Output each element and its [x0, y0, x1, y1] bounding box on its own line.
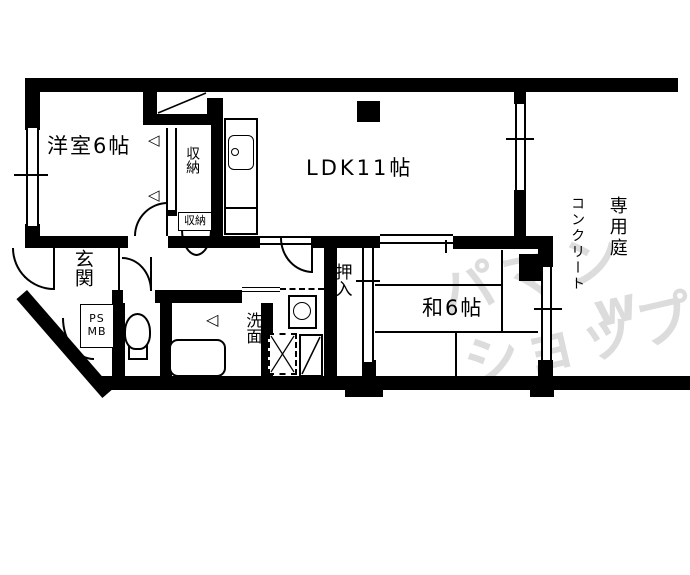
water-heater-box: [299, 334, 323, 377]
bath-door-marker-icon: ◁: [206, 312, 218, 328]
room-label-closet: 収納: [184, 146, 200, 174]
sliding-tick-oshiire: [356, 280, 380, 282]
door-leaf-toilet: [150, 257, 152, 291]
wall-ldk-right: [514, 190, 526, 236]
room-label-washroom: 洗面: [243, 312, 261, 344]
room-label-japanese: 和6帖: [422, 296, 483, 320]
wall-left-upper: [25, 78, 40, 130]
kitchen-counter-divider: [226, 207, 256, 209]
window-tick-japanese: [534, 308, 562, 310]
sliding-door-japanese-top-icon: [380, 234, 453, 244]
garden-surface-label: コンクリート: [569, 196, 585, 292]
tatami-line: [375, 284, 503, 286]
sliding-tick-japanese-top: [445, 240, 447, 253]
room-label-entrance: 玄関: [71, 249, 93, 287]
closet-small-box: 収納: [178, 212, 212, 231]
pillar-ldk-square: [357, 101, 380, 122]
wall-top: [25, 78, 678, 92]
water-heater-diagonal-icon: [301, 336, 321, 375]
pipe-meter-box: PS MB: [80, 304, 114, 348]
toilet-bowl-icon: [124, 313, 151, 350]
wall-hall-divider-left: [25, 236, 128, 248]
pillar-ldk-window-top: [514, 92, 526, 104]
wall-japanese-right-bottom: [538, 360, 553, 388]
fridge-slot-diagonal-icon: [157, 92, 207, 114]
wall-fusuma-bottom: [362, 360, 376, 378]
door-arc-entrance-icon: [12, 248, 54, 290]
floor-plan: パマン ショップ w: [0, 0, 690, 575]
pillar-japanese-room-ne: [519, 254, 543, 281]
garden-label: 専用庭: [606, 196, 627, 259]
door-leaf-entrance: [53, 248, 55, 290]
folding-door-marker-icon: ◁: [148, 188, 160, 203]
tatami-line: [501, 250, 503, 333]
window-ldk-icon: [515, 104, 526, 190]
window-tick-ldk: [506, 138, 534, 140]
wall-kitchen-left: [211, 98, 223, 236]
room-label-closet-small: 収納: [184, 215, 206, 228]
door-arc-ldk-icon: [280, 238, 313, 273]
wall-sanitary-top-right: [155, 290, 242, 303]
entrance-threshold-line: [118, 248, 120, 292]
accordion-door-washroom-icon: [280, 288, 324, 290]
wall-bottom: [100, 376, 690, 390]
window-western-room-icon: [26, 128, 39, 226]
room-label-ldk: LDK11帖: [306, 156, 413, 180]
door-leaf-ldk: [311, 238, 313, 273]
room-label-oshiire: 押入: [331, 263, 351, 297]
door-arc-western-room-icon: [134, 202, 168, 236]
washbasin-bowl-icon: [293, 302, 311, 320]
window-japanese-room-icon: [541, 267, 552, 360]
washing-machine-icon: [268, 333, 297, 375]
door-arc-closet-right-icon: [196, 230, 212, 256]
wall-hall-divider-right: [313, 236, 380, 248]
kitchen-faucet-icon: [231, 148, 239, 156]
window-tick-western: [14, 174, 48, 176]
tatami-line: [455, 333, 457, 376]
folding-door-marker-icon: ◁: [148, 133, 160, 148]
sliding-door-oshiire-icon: [362, 248, 374, 362]
bathtub-icon: [169, 339, 226, 377]
door-arc-toilet-icon: [122, 257, 152, 291]
door-arc-closet-left-icon: [181, 230, 197, 256]
wall-bottom-stub-a: [345, 388, 383, 397]
room-label-western: 洋室6帖: [47, 134, 131, 158]
mb-label: MB: [87, 326, 106, 339]
folding-door-closet-icon: [166, 128, 177, 210]
partition-washroom-top: [242, 287, 280, 292]
fridge-slot: [157, 92, 207, 114]
wall-bottom-stub-b: [530, 388, 554, 397]
